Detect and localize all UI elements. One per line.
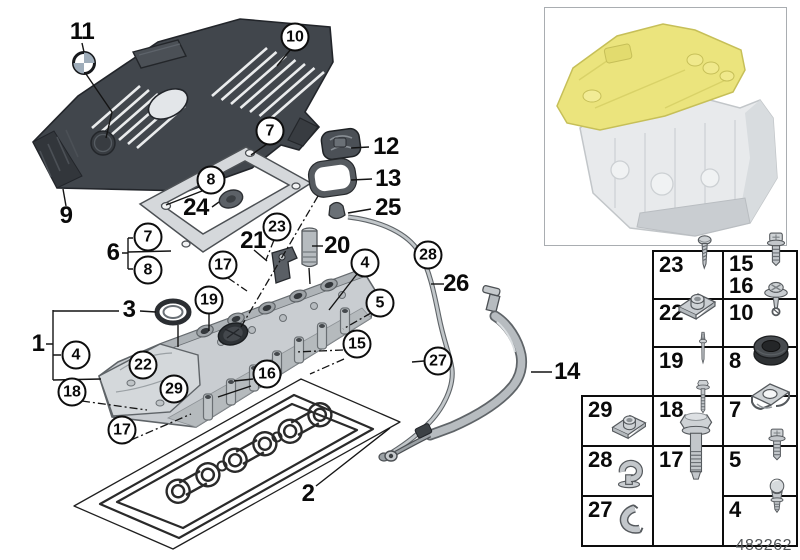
engine-thumbnail[interactable]: [544, 7, 787, 246]
vent-valve-20-art: [302, 231, 317, 267]
callout-circle-19[interactable]: 19: [195, 286, 224, 315]
callout-1[interactable]: 1: [32, 332, 45, 356]
cell-label: 16: [729, 275, 753, 297]
engine-thumbnail-art: [545, 8, 785, 244]
ball-stud-icon: [760, 475, 794, 519]
clip-25-art: [329, 203, 345, 219]
callout-20[interactable]: 20: [324, 234, 350, 258]
cell-label: 4: [729, 499, 741, 521]
callout-24[interactable]: 24: [183, 196, 209, 220]
cage-nut-icon: [608, 401, 650, 441]
cell-label: 7: [729, 399, 741, 421]
torx-bolt-icon: [758, 229, 794, 275]
callout-3[interactable]: 3: [123, 298, 136, 322]
callout-circle-17-b[interactable]: 17: [108, 416, 137, 445]
callout-circle-28[interactable]: 28: [414, 241, 443, 270]
seal-ring-3-art: [157, 301, 189, 323]
callout-14[interactable]: 14: [554, 360, 580, 384]
table-cell-28[interactable]: 28: [582, 446, 653, 496]
cap-seal-13-art: [310, 160, 355, 195]
small-parts-art: [272, 127, 362, 283]
callout-circle-29[interactable]: 29: [160, 375, 189, 404]
table-cell-27[interactable]: 27: [582, 496, 653, 546]
hose-clip-icon: [606, 501, 650, 541]
callout-circle-16[interactable]: 16: [253, 360, 282, 389]
callout-circle-17-a[interactable]: 17: [209, 251, 238, 280]
spring-nut-icon: [746, 376, 794, 418]
cell-label: 5: [729, 449, 741, 471]
cell-label: 15: [729, 253, 753, 275]
callout-6[interactable]: 6: [107, 241, 120, 265]
callout-21[interactable]: 21: [240, 229, 266, 253]
washer-screw-icon: [758, 277, 794, 323]
callout-circle-5[interactable]: 5: [366, 289, 395, 318]
rubber-grommet-icon: [746, 327, 794, 369]
emblem-roundel-art: [74, 53, 95, 74]
callout-circle-10[interactable]: 10: [281, 23, 310, 52]
cage-nut-icon: [674, 279, 720, 321]
callout-25[interactable]: 25: [375, 196, 401, 220]
valve-cover-art: [99, 269, 375, 427]
callout-circle-8-a[interactable]: 8: [197, 166, 226, 195]
callout-9[interactable]: 9: [60, 204, 73, 228]
callout-circle-15[interactable]: 15: [343, 330, 372, 359]
callout-11[interactable]: 11: [70, 20, 94, 44]
table-cell-17[interactable]: 17: [653, 446, 723, 546]
stud-bolt-icon: [688, 325, 718, 371]
callout-circle-22[interactable]: 22: [129, 351, 158, 380]
callout-circle-27[interactable]: 27: [424, 347, 453, 376]
callout-circle-18[interactable]: 18: [58, 378, 87, 407]
cell-label: 23: [659, 254, 683, 276]
tapping-screw-icon: [686, 230, 720, 274]
fastener-table: 23 15 16: [581, 250, 798, 547]
table-cell-29[interactable]: 29: [582, 396, 653, 446]
callout-circle-7-a[interactable]: 7: [256, 117, 285, 146]
callout-circle-4-a[interactable]: 4: [351, 249, 380, 278]
callout-12[interactable]: 12: [373, 135, 399, 159]
hex-bolt-icon: [674, 404, 718, 490]
callout-circle-8-b[interactable]: 8: [134, 256, 163, 285]
cell-label: 8: [729, 350, 741, 372]
cell-label: 19: [659, 350, 683, 372]
callout-2[interactable]: 2: [302, 482, 315, 506]
callout-26[interactable]: 26: [443, 272, 469, 296]
callout-circle-4-b[interactable]: 4: [62, 341, 91, 370]
document-number: 483262: [700, 537, 792, 555]
callout-circle-7-b[interactable]: 7: [134, 223, 163, 252]
parts-diagram-page: 23 15 16: [0, 0, 800, 560]
cell-label: 10: [729, 302, 753, 324]
cable-clip-icon: [608, 451, 650, 491]
callout-circle-23[interactable]: 23: [263, 213, 292, 242]
callout-13[interactable]: 13: [375, 167, 401, 191]
torx-bolt-icon: [760, 425, 794, 469]
